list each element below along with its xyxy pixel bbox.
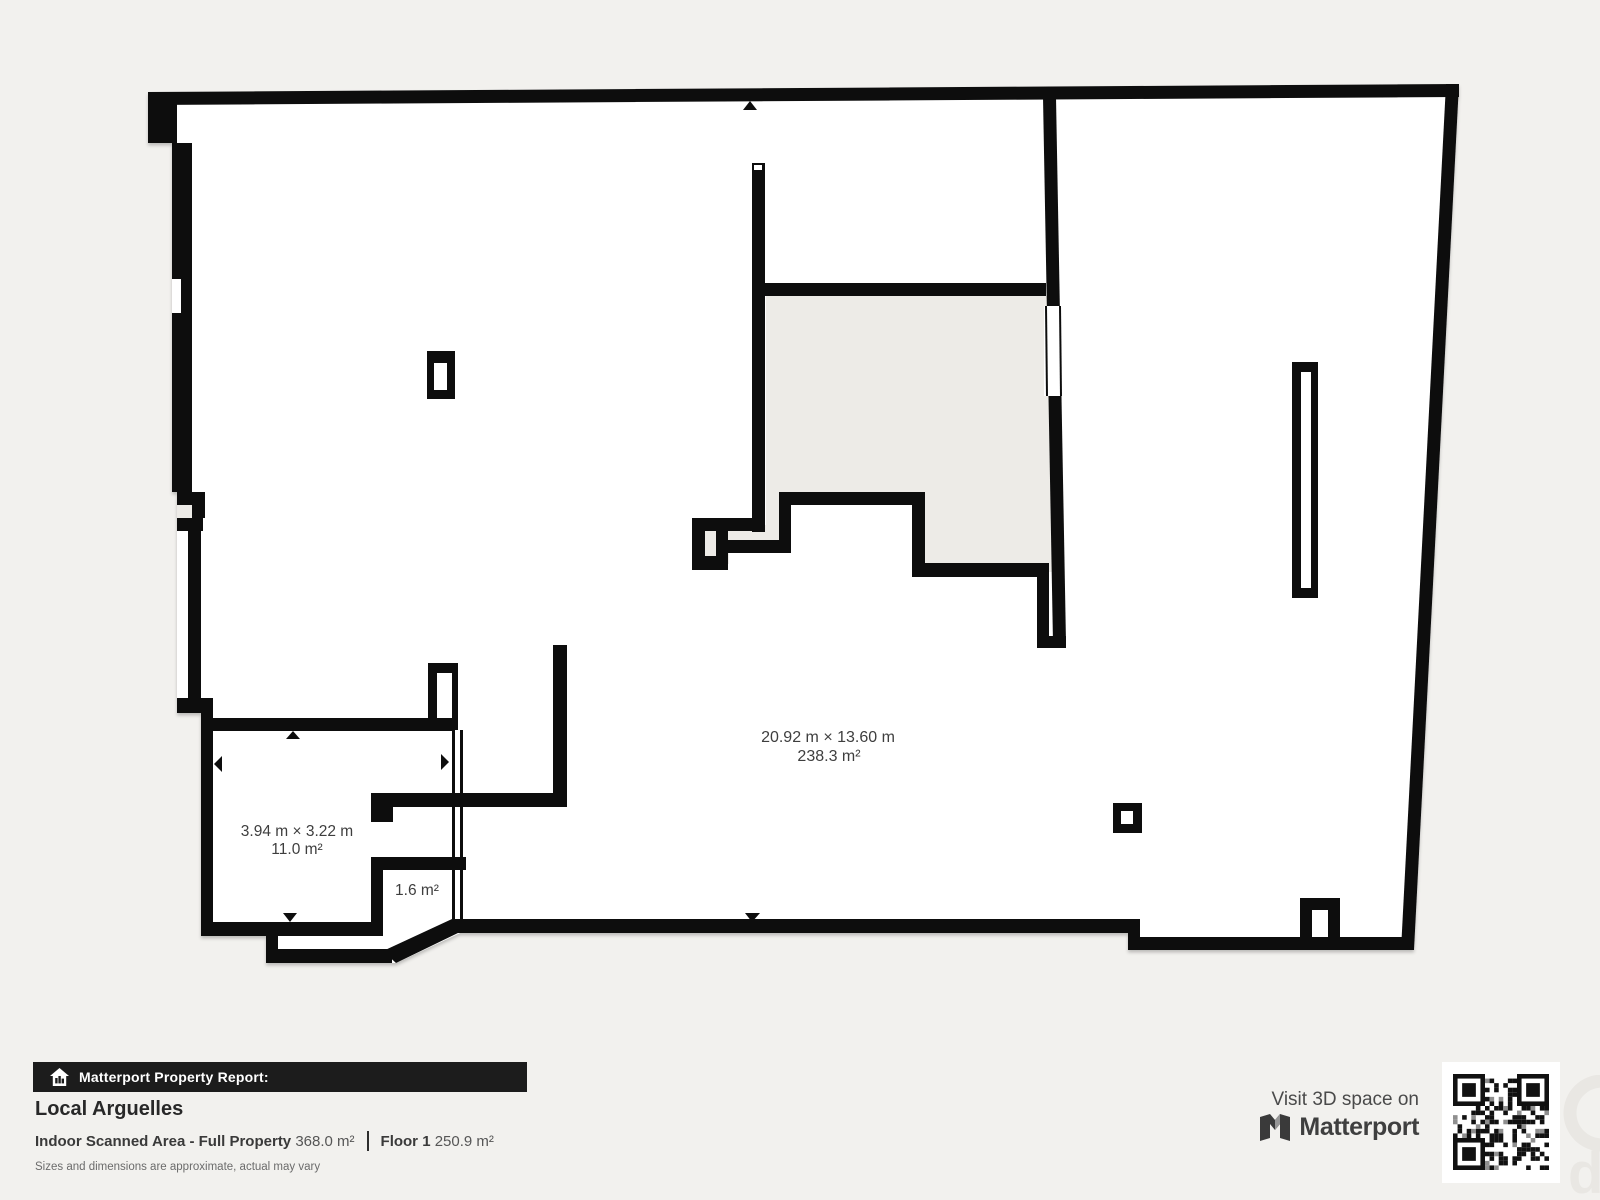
wall-vestibule-top (371, 857, 466, 870)
wall-bottom-a (452, 919, 1140, 933)
wall-upper-middle (760, 283, 1046, 296)
main-room-dimensions: 20.92 m × 13.60 m (761, 729, 895, 746)
report-header-bar: Matterport Property Report: (33, 1062, 527, 1092)
main-room-area: 238.3 m² (797, 748, 861, 765)
wall-corner-left (177, 698, 213, 713)
matterport-brand: Matterport (1260, 1113, 1419, 1142)
report-header-label: Matterport Property Report: (79, 1069, 269, 1085)
small-room-area: 11.0 m² (271, 841, 322, 858)
property-name: Local Arguelles (35, 1098, 183, 1121)
separator (367, 1131, 369, 1151)
floor-plan: 20.92 m × 13.60 m 238.3 m² 3.94 m × 3.22… (0, 0, 1600, 1040)
floor-area-value: 250.9 m² (435, 1133, 494, 1150)
small-room-dimensions: 3.94 m × 3.22 m (241, 823, 353, 840)
page: 20.92 m × 13.60 m 238.3 m² 3.94 m × 3.22… (0, 0, 1600, 1200)
wall-corner-topleft (148, 92, 177, 143)
svg-text:d: d (1568, 1141, 1600, 1200)
window-left (172, 279, 181, 313)
wall-bottom-b (1128, 937, 1414, 950)
visit-3d-label: Visit 3D space on (1271, 1089, 1419, 1111)
wall-left-lower (188, 531, 201, 698)
area-summary: Indoor Scanned Area - Full Property 368.… (35, 1131, 494, 1151)
wall-smallroom-top (201, 718, 452, 731)
wall-nook-vertical (553, 645, 567, 807)
qr-code (1442, 1062, 1560, 1183)
wall-nook-horizontal (371, 793, 567, 807)
vestibule-area: 1.6 m² (395, 882, 439, 899)
wall-smallroom-left (201, 713, 213, 936)
house-icon (50, 1068, 69, 1086)
wall-smallroom-bottom (201, 922, 383, 936)
wall-interior-long (752, 163, 765, 532)
wall-vestibule-left (371, 857, 383, 936)
matterport-wordmark: Matterport (1299, 1113, 1419, 1142)
disclaimer-text: Sizes and dimensions are approximate, ac… (35, 1161, 320, 1173)
scanned-area-label: Indoor Scanned Area - Full Property (35, 1133, 291, 1150)
matterport-logo-icon (1260, 1114, 1290, 1141)
floor-label: Floor 1 (381, 1133, 431, 1150)
scanned-area-value-text: 368.0 m² (295, 1133, 354, 1150)
